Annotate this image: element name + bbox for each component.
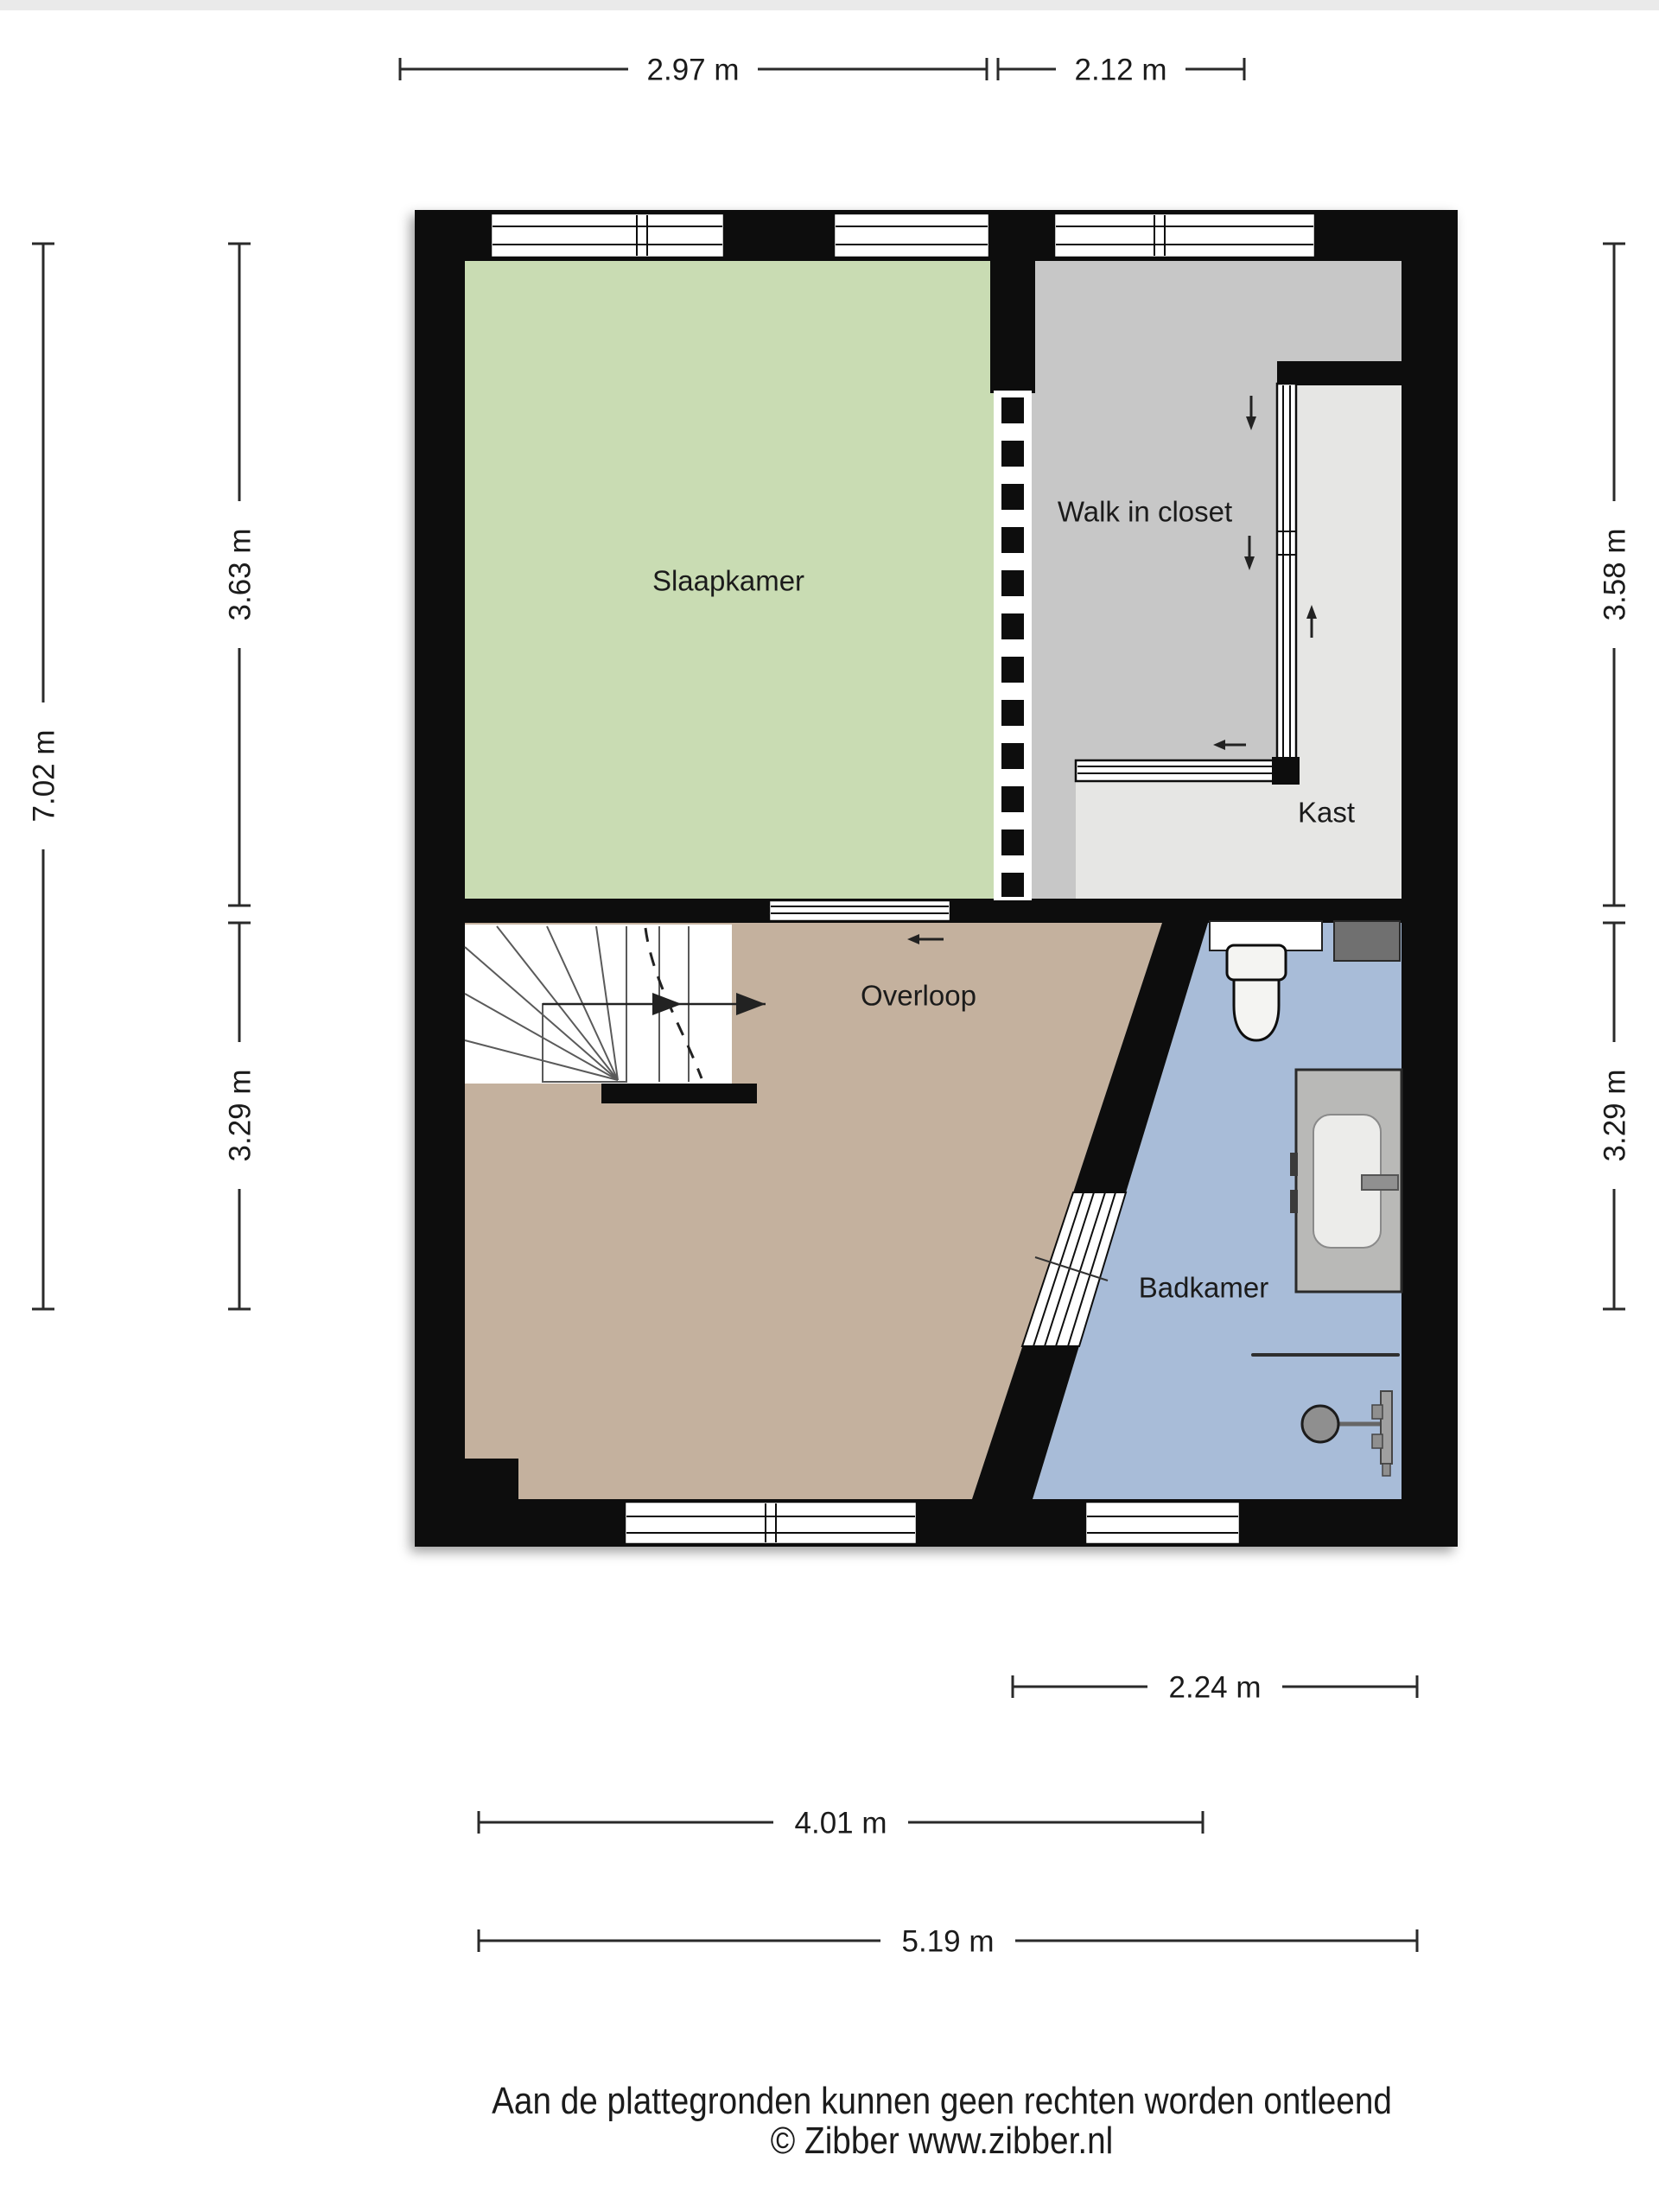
room-label-slaapkamer: Slaapkamer [652, 565, 804, 597]
dim-label: 2.97 m [647, 53, 740, 86]
kast-horizontal-track [1076, 760, 1274, 781]
dim-bottom-2: 4.01 m [479, 1806, 1203, 1840]
floorplan-page: Slaapkamer Walk in closet Kast Overloop … [0, 0, 1659, 2212]
sliding-opening-slaapkamer [994, 391, 1032, 900]
dim-label: 4.01 m [795, 1806, 887, 1840]
dim-left-outer: 7.02 m [27, 244, 60, 1309]
footer-copyright: © Zibber www.zibber.nl [771, 2119, 1113, 2162]
sliding-door-overloop [769, 900, 950, 921]
dim-left-lower: 3.29 m [223, 923, 257, 1309]
dim-top-1: 2.97 m [400, 53, 987, 86]
dim-label: 3.29 m [1598, 1070, 1631, 1162]
room-label-walk-in-closet: Walk in closet [1058, 496, 1232, 528]
floorplan-drawing [415, 210, 1458, 1547]
shower-head-icon [1302, 1406, 1338, 1442]
kast-vertical-track [1277, 384, 1296, 760]
room-label-overloop: Overloop [861, 980, 976, 1012]
room-label-kast: Kast [1298, 797, 1355, 829]
dim-label: 3.29 m [223, 1070, 257, 1162]
shower-mixer [1381, 1391, 1392, 1464]
divider-wall-stub [990, 261, 1035, 393]
dim-right-upper: 3.58 m [1598, 244, 1631, 906]
dim-label: 3.63 m [223, 529, 257, 621]
dim-left-upper: 3.63 m [223, 244, 257, 906]
screen-top-strip [0, 0, 1659, 10]
middle-wall [465, 899, 1458, 923]
stairs-bottom-wall [601, 1084, 757, 1103]
dim-right-lower: 3.29 m [1598, 923, 1631, 1309]
kast-stub-wall [1277, 361, 1402, 385]
window [491, 213, 724, 257]
stairs [465, 925, 766, 1103]
room-label-badkamer: Badkamer [1139, 1272, 1268, 1304]
floorplan-canvas: Slaapkamer Walk in closet Kast Overloop … [0, 0, 1659, 2212]
footer-disclaimer: Aan de plattegronden kunnen geen rechten… [492, 2079, 1392, 2122]
window [834, 213, 989, 257]
sink-cabinet [1290, 1070, 1402, 1292]
wall-notch [465, 1459, 518, 1499]
kast-track-corner [1272, 757, 1300, 785]
dim-top-2: 2.12 m [998, 53, 1244, 86]
dim-label: 2.24 m [1169, 1670, 1262, 1704]
window [1054, 213, 1315, 257]
radiator [1334, 921, 1400, 961]
dim-label: 3.58 m [1598, 529, 1631, 621]
dim-bottom-1: 2.24 m [1013, 1670, 1417, 1704]
window [625, 1502, 917, 1544]
sink-tap-icon [1362, 1175, 1398, 1190]
dim-label: 5.19 m [902, 1924, 995, 1958]
dim-label: 2.12 m [1075, 53, 1167, 86]
dim-bottom-3: 5.19 m [479, 1924, 1417, 1958]
dim-label: 7.02 m [27, 730, 60, 823]
window [1085, 1502, 1240, 1544]
